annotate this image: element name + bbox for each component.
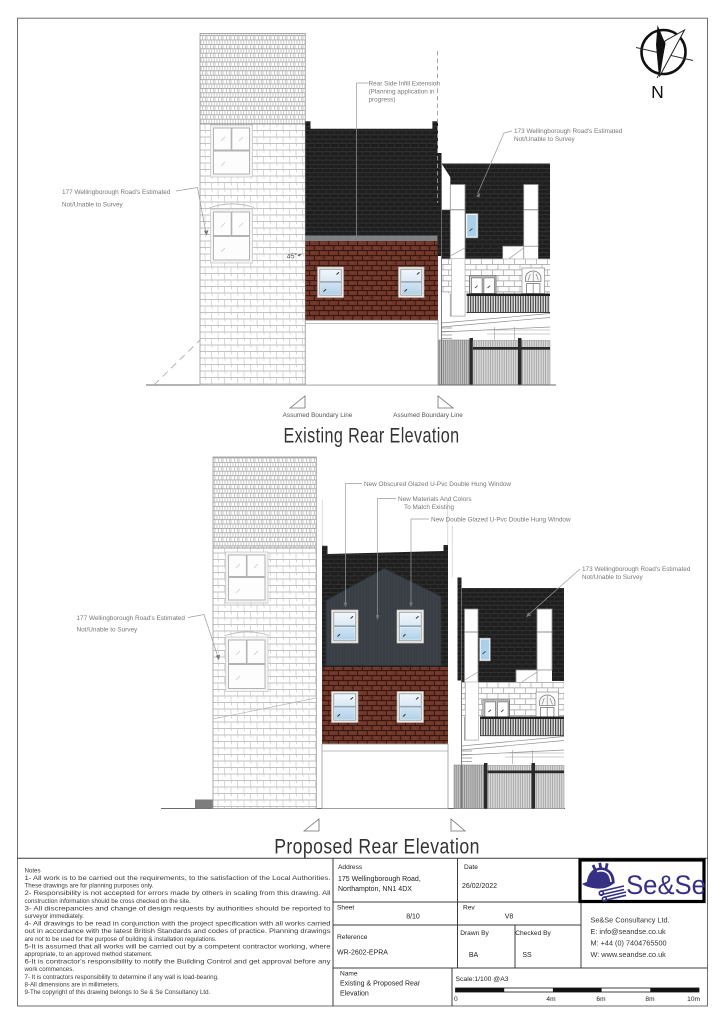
svg-text:Elevation: Elevation [340,991,369,998]
svg-text:Se&Se: Se&Se [626,869,706,900]
svg-text:Reference: Reference [337,934,368,941]
svg-text:Assumed Boundary Line: Assumed Boundary Line [393,412,463,419]
svg-text:5-It is assumed that all works: 5-It is assumed that all works will be c… [25,943,332,950]
svg-text:N: N [651,82,664,102]
svg-text:175 Wellingborough Road,: 175 Wellingborough Road, [338,876,421,883]
svg-text:8/10: 8/10 [406,914,420,921]
svg-text:These drawings are for plannin: These drawings are for planning purposes… [25,883,154,890]
svg-text:Se&Se Consultancy Ltd.: Se&Se Consultancy Ltd. [591,916,670,925]
svg-text:Notes: Notes [25,868,41,875]
svg-text:Assumed Boundary Line: Assumed Boundary Line [283,412,353,419]
svg-text:Northampton, NN1 4DX: Northampton, NN1 4DX [338,886,412,893]
svg-text:Proposed Rear Elevation: Proposed Rear Elevation [274,835,480,859]
svg-text:Scale:1/100 @A3: Scale:1/100 @A3 [456,976,509,983]
svg-text:8m: 8m [645,996,655,1003]
svg-text:W: www.seandse.co.uk: W: www.seandse.co.uk [591,950,667,959]
svg-text:26/02/2022: 26/02/2022 [462,883,497,890]
svg-text:BA: BA [469,952,479,959]
svg-text:3- All discrepancies and chang: 3- All discrepancies and change of desig… [25,905,332,912]
svg-text:Checked By: Checked By [515,930,551,937]
svg-text:are not to be used for the pur: are not to be used for the purpose of bu… [25,936,217,943]
svg-text:New Double Glazed U-Pvc Double: New Double Glazed U-Pvc Double Hung Wind… [431,517,571,524]
svg-text:Existing Rear Elevation: Existing Rear Elevation [284,423,460,447]
svg-text:6m: 6m [596,996,606,1003]
svg-text:9-The copyright of this drawin: 9-The copyright of this drawing belongs … [25,989,211,996]
svg-text:work commences.: work commences. [24,966,75,973]
svg-text:Name: Name [340,971,358,978]
svg-text:construction information shoul: construction information should be cross… [25,898,192,905]
svg-text:(Planning application in: (Planning application in [369,88,436,95]
svg-text:Drawn By: Drawn By [460,930,489,937]
svg-text:out in accordance with the lat: out in accordance with the latest Britis… [25,928,331,935]
svg-text:M: +44 (0) 7404765500: M: +44 (0) 7404765500 [591,939,667,948]
svg-text:8-All dimensions are in millim: 8-All dimensions are in millimeters. [25,981,120,988]
svg-text:Sheet: Sheet [337,905,354,912]
svg-text:4m: 4m [546,996,556,1003]
svg-text:173 Wellingborough Road's Esti: 173 Wellingborough Road's Estimated [582,566,691,573]
svg-text:177 Wellingborough Road's Esti: 177 Wellingborough Road's Estimated [62,189,171,196]
svg-text:Existing & Proposed Rear: Existing & Proposed Rear [340,981,421,988]
svg-text:4- All drawings to be read in: 4- All drawings to be read in conjunctio… [25,921,332,928]
svg-text:173 Wellingborough Road's Esti: 173 Wellingborough Road's Estimated [514,128,623,135]
svg-text:45°: 45° [286,252,298,261]
svg-text:177 Wellingborough Road's Esti: 177 Wellingborough Road's Estimated [77,615,186,622]
svg-text:10m: 10m [687,996,700,1003]
svg-text:To Match Existing: To Match Existing [404,504,455,511]
svg-text:0: 0 [454,996,458,1003]
svg-text:1- All work is to be carried o: 1- All work is to be carried out the req… [25,875,331,882]
svg-text:V8: V8 [505,914,514,921]
svg-text:6-It is contractor's responsib: 6-It is contractor's responsibility to n… [25,959,332,966]
svg-text:SS: SS [522,952,532,959]
svg-text:WR-2602-EPRA: WR-2602-EPRA [337,950,388,957]
svg-text:New Obscured Glazed U-Pvc Doub: New Obscured Glazed U-Pvc Double Hung Wi… [364,481,511,488]
svg-text:surveyor immediately.: surveyor immediately. [25,913,85,920]
svg-text:E: info@seandse.co.uk: E: info@seandse.co.uk [591,927,667,936]
svg-text:Rear Side Infill Extension: Rear Side Infill Extension [369,80,441,87]
svg-text:Not/Unable to Survey: Not/Unable to Survey [582,574,644,581]
svg-text:progress): progress) [369,96,396,103]
svg-text:Not/Unable to Survey: Not/Unable to Survey [62,202,124,209]
svg-text:appropriate, to an approved me: appropriate, to an approved method state… [25,951,153,958]
svg-text:Address: Address [338,864,363,871]
svg-text:2- Responsibility is not accep: 2- Responsibility is not accepted for er… [25,890,331,897]
svg-text:7- It is contractors responsib: 7- It is contractors responsibility to d… [25,974,219,981]
svg-text:New Materials And Colors: New Materials And Colors [398,496,472,503]
svg-text:Rev: Rev [463,905,475,912]
svg-text:Date: Date [464,864,478,871]
svg-text:Not/Unable to Survey: Not/Unable to Survey [77,627,139,634]
svg-text:Not/Unable to Survey: Not/Unable to Survey [514,136,576,143]
